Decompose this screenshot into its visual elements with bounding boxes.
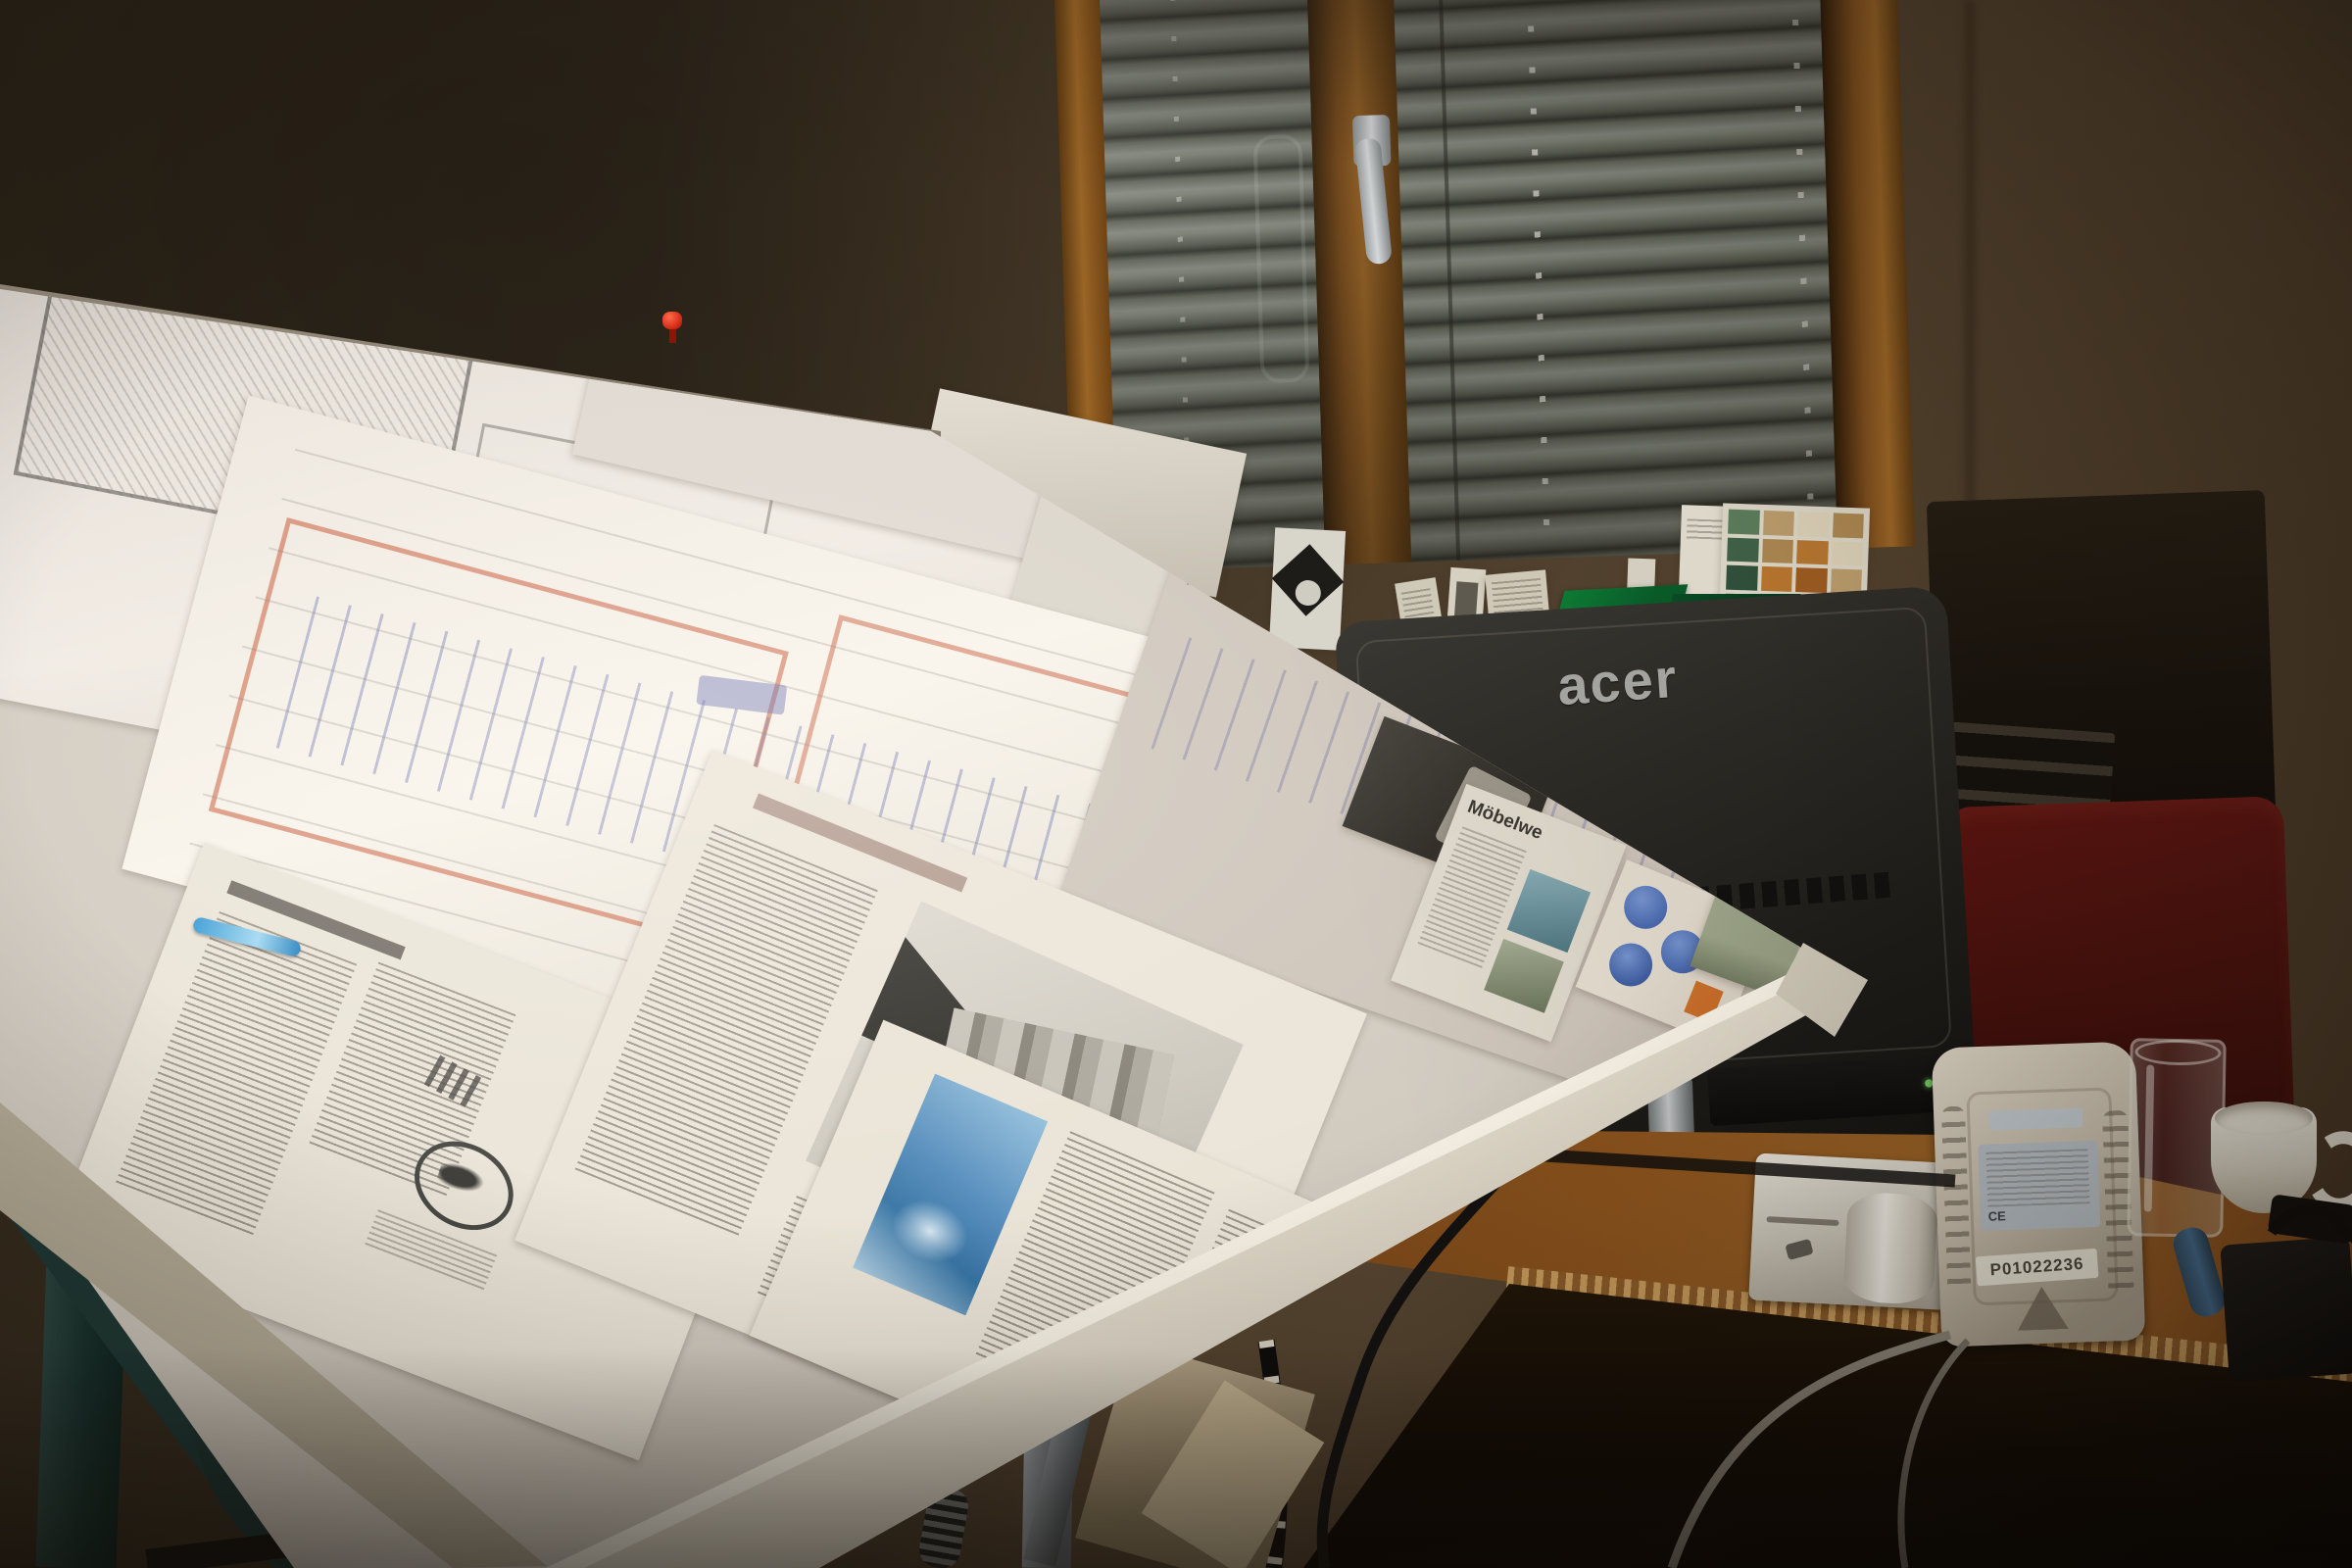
moebel-photo-teal [1507,869,1591,953]
cable-black-hanging [1322,1149,1527,1568]
cable-black-desk [1529,1154,1955,1181]
red-pushpin [659,312,688,345]
pushpin-stem [669,327,676,343]
stamp-glyph [435,1157,492,1200]
newspaper-column [115,911,358,1239]
moebel-photo-2 [1484,939,1564,1013]
badge-blue-3 [1602,937,1658,993]
cable-clamp-squiggle [2272,1209,2352,1244]
cable-gray-2 [1901,1341,1968,1568]
photo-white-streak [882,1189,977,1273]
badge-blue-1 [1618,879,1674,935]
pushpin-head [662,312,682,329]
photo-home-office: acer CE P01022236 [0,0,2352,1568]
